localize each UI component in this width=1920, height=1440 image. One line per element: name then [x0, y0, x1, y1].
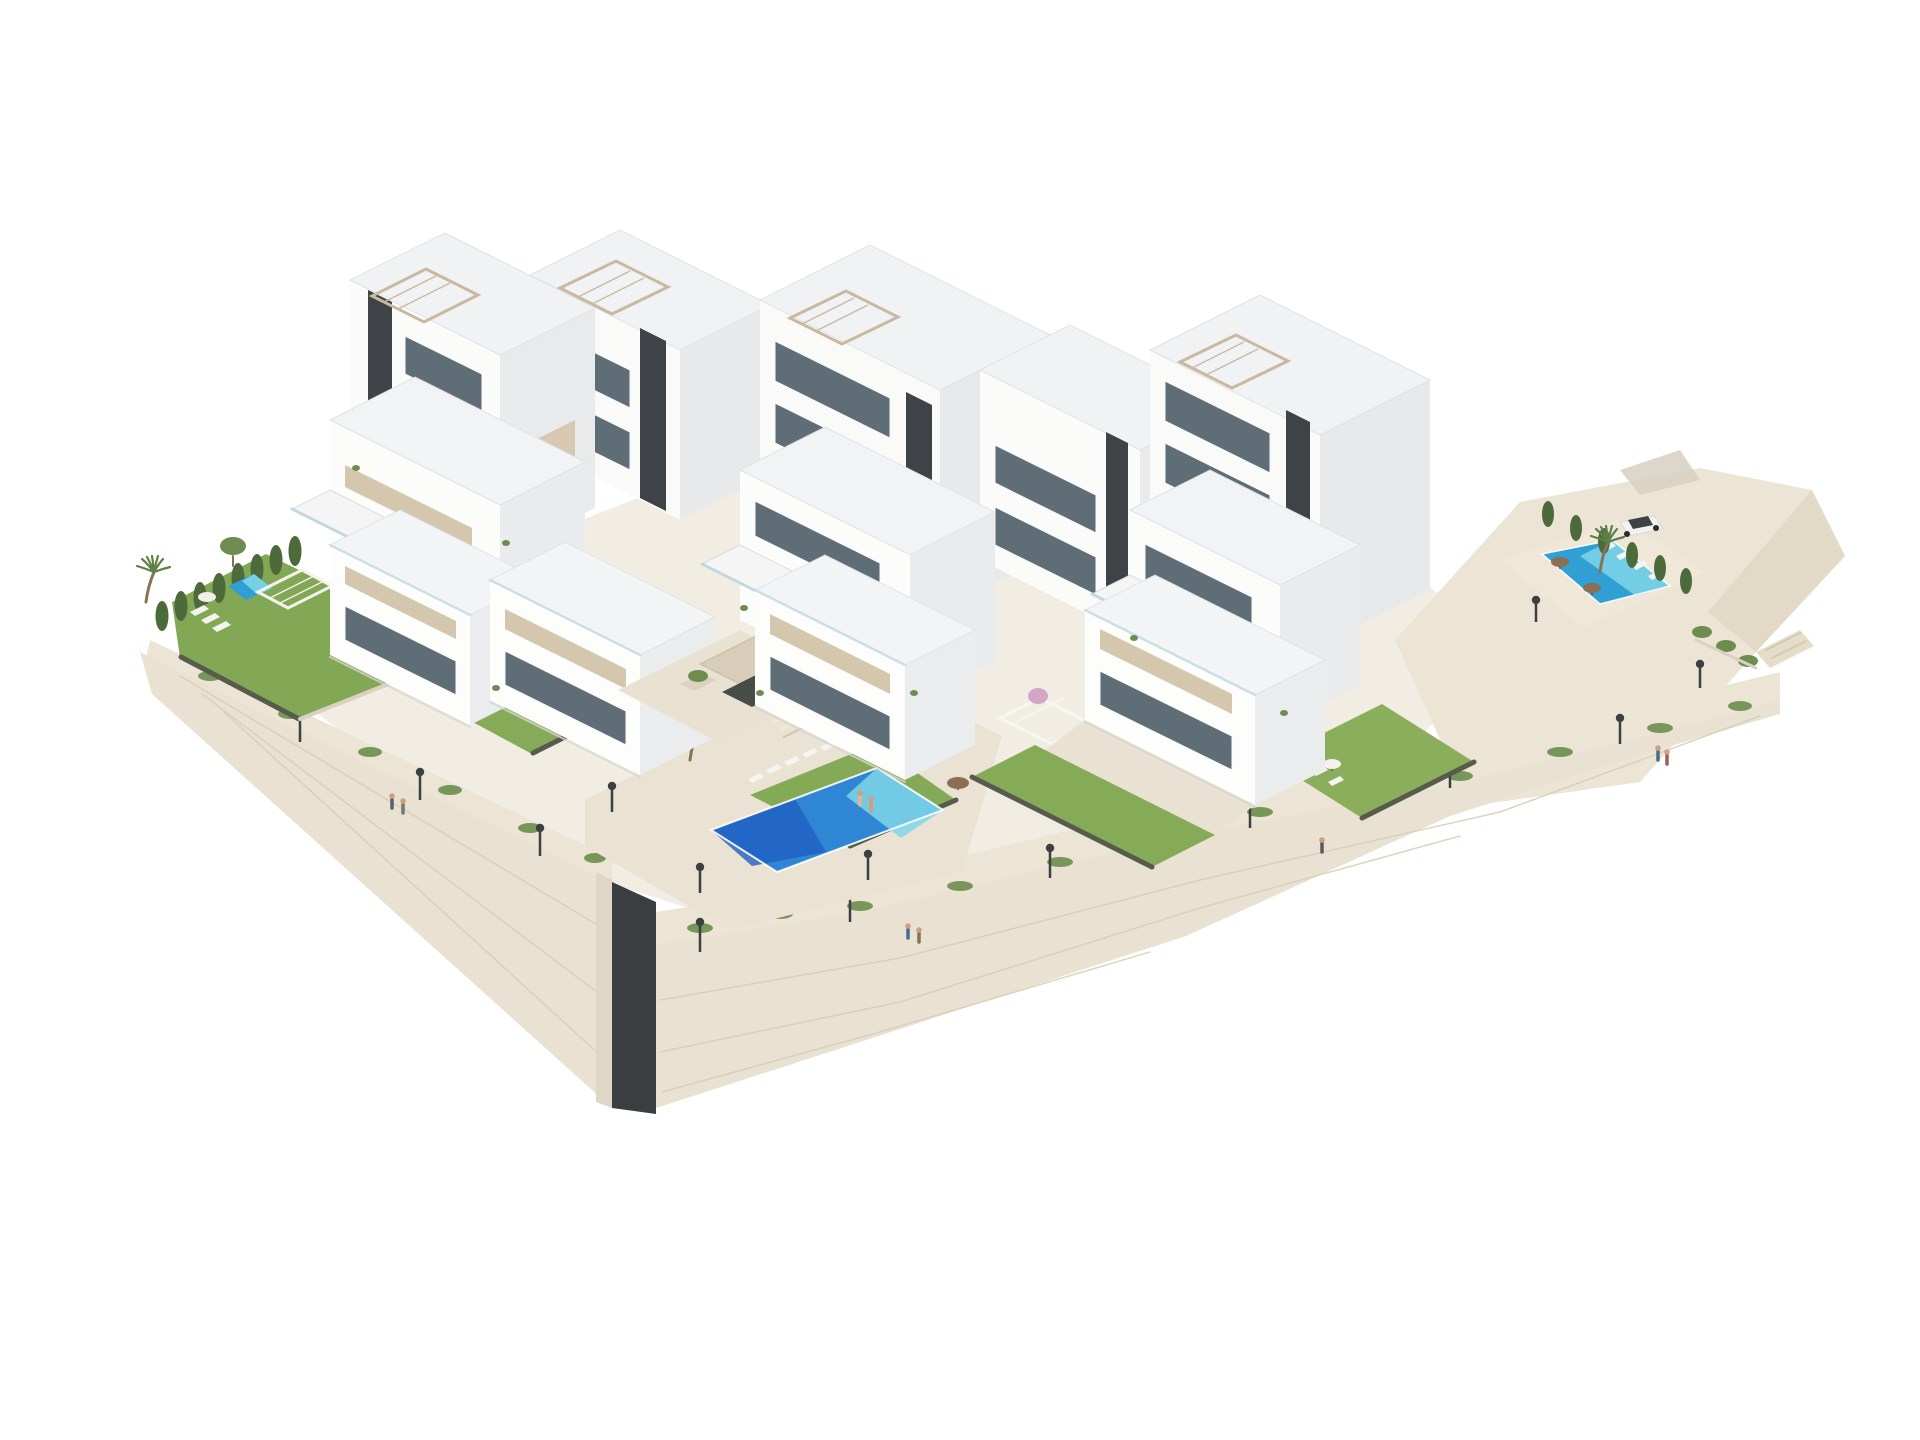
stair-shaft-column: [596, 872, 612, 1108]
street-lamp: [696, 863, 704, 871]
pool-umbrella: [1551, 557, 1569, 567]
swimmer: [857, 790, 863, 796]
street-lamp: [1046, 844, 1054, 852]
terrace-plant: [740, 605, 748, 611]
wall-top-greenery: [438, 785, 462, 795]
terrace-plant: [1280, 710, 1288, 716]
street-lamp: [696, 918, 704, 926]
terrace-plant: [756, 690, 764, 696]
pool-umbrella: [1583, 583, 1601, 593]
swimmer: [868, 796, 874, 802]
cypress-hedge: [289, 536, 302, 566]
cypress-hedge: [1680, 568, 1692, 594]
pedestrian: [905, 923, 911, 929]
cypress-hedge: [1626, 542, 1638, 568]
car-wheel: [1624, 531, 1630, 537]
flowering-tree: [1028, 688, 1048, 704]
wall-top-greenery: [1647, 723, 1673, 733]
terrace-plant: [1130, 635, 1138, 641]
terrace-plant: [352, 465, 360, 471]
garden-umbrella: [198, 592, 216, 602]
wall-top-greenery: [1547, 747, 1573, 757]
street-lamp: [1616, 714, 1624, 722]
cypress-hedge: [175, 591, 188, 621]
olive-tree: [220, 537, 246, 555]
street-lamp: [536, 824, 544, 832]
wall-top-greenery: [1728, 701, 1752, 711]
planter-shrub: [688, 670, 708, 682]
street-lamp: [416, 768, 424, 776]
site-rendering-svg: [0, 0, 1920, 1440]
street-lamp: [1532, 596, 1540, 604]
garden-umbrella: [1323, 759, 1341, 769]
terrace-plant: [492, 685, 500, 691]
architectural-rendering: [0, 0, 1920, 1440]
stair-core: [640, 328, 666, 511]
street-lamp: [864, 850, 872, 858]
pedestrian: [400, 798, 406, 804]
stair-shaft-dark: [612, 882, 656, 1114]
pedestrian: [1664, 749, 1670, 755]
palm-tree: [146, 572, 154, 602]
cypress-hedge: [1570, 515, 1582, 541]
cypress-hedge: [270, 545, 283, 575]
cypress-hedge: [1542, 501, 1554, 527]
street-lamp: [608, 782, 616, 790]
pedestrian: [916, 927, 922, 933]
pedestrian: [1319, 837, 1325, 843]
terrace-plant: [502, 540, 510, 546]
pedestrian: [1655, 745, 1661, 751]
planter-shrub: [1692, 626, 1712, 638]
cypress-hedge: [1654, 555, 1666, 581]
street-lamp: [1696, 660, 1704, 668]
car-wheel: [1653, 525, 1659, 531]
terrace-plant: [910, 690, 918, 696]
pedestrian: [389, 793, 395, 799]
wall-top-greenery: [947, 881, 973, 891]
wall-top-greenery: [358, 747, 382, 757]
cypress-hedge: [156, 601, 169, 631]
pool-umbrella: [947, 777, 969, 789]
